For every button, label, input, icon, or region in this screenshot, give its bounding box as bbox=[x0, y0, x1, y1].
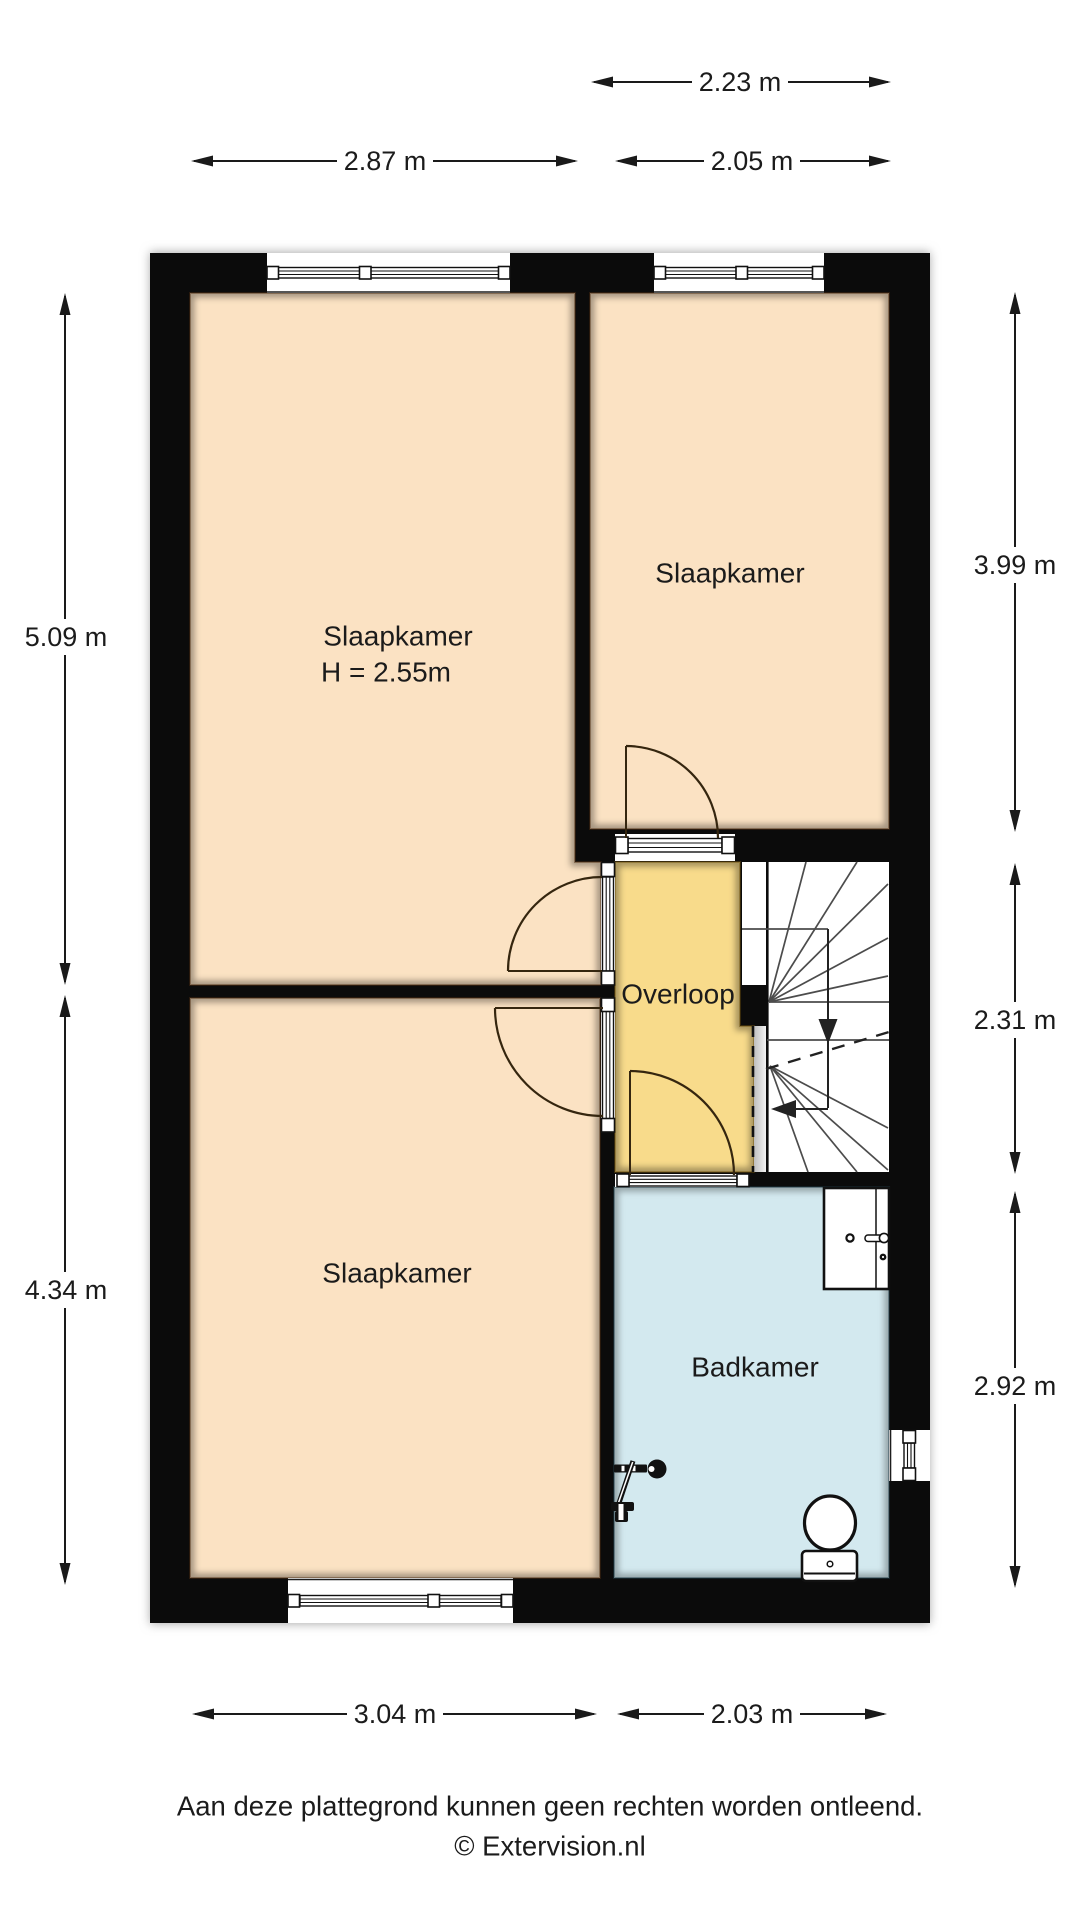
svg-text:2.03 m: 2.03 m bbox=[711, 1699, 794, 1729]
svg-text:Slaapkamer: Slaapkamer bbox=[323, 621, 472, 652]
svg-text:Aan deze plattegrond kunnen ge: Aan deze plattegrond kunnen geen rechten… bbox=[177, 1791, 923, 1822]
svg-text:5.09 m: 5.09 m bbox=[25, 622, 108, 652]
svg-text:4.34 m: 4.34 m bbox=[25, 1275, 108, 1305]
svg-text:3.99 m: 3.99 m bbox=[974, 550, 1057, 580]
svg-text:2.05 m: 2.05 m bbox=[711, 146, 794, 176]
svg-text:H = 2.55m: H = 2.55m bbox=[321, 657, 451, 688]
svg-text:2.92 m: 2.92 m bbox=[974, 1371, 1057, 1401]
svg-text:2.87 m: 2.87 m bbox=[344, 146, 427, 176]
svg-text:2.23 m: 2.23 m bbox=[699, 67, 782, 97]
svg-text:Overloop: Overloop bbox=[621, 979, 735, 1010]
svg-text:Slaapkamer: Slaapkamer bbox=[322, 1258, 471, 1289]
svg-text:Slaapkamer: Slaapkamer bbox=[655, 558, 804, 589]
svg-text:2.31 m: 2.31 m bbox=[974, 1005, 1057, 1035]
svg-text:© Extervision.nl: © Extervision.nl bbox=[454, 1831, 645, 1862]
svg-text:Badkamer: Badkamer bbox=[691, 1352, 819, 1383]
svg-text:3.04 m: 3.04 m bbox=[354, 1699, 437, 1729]
